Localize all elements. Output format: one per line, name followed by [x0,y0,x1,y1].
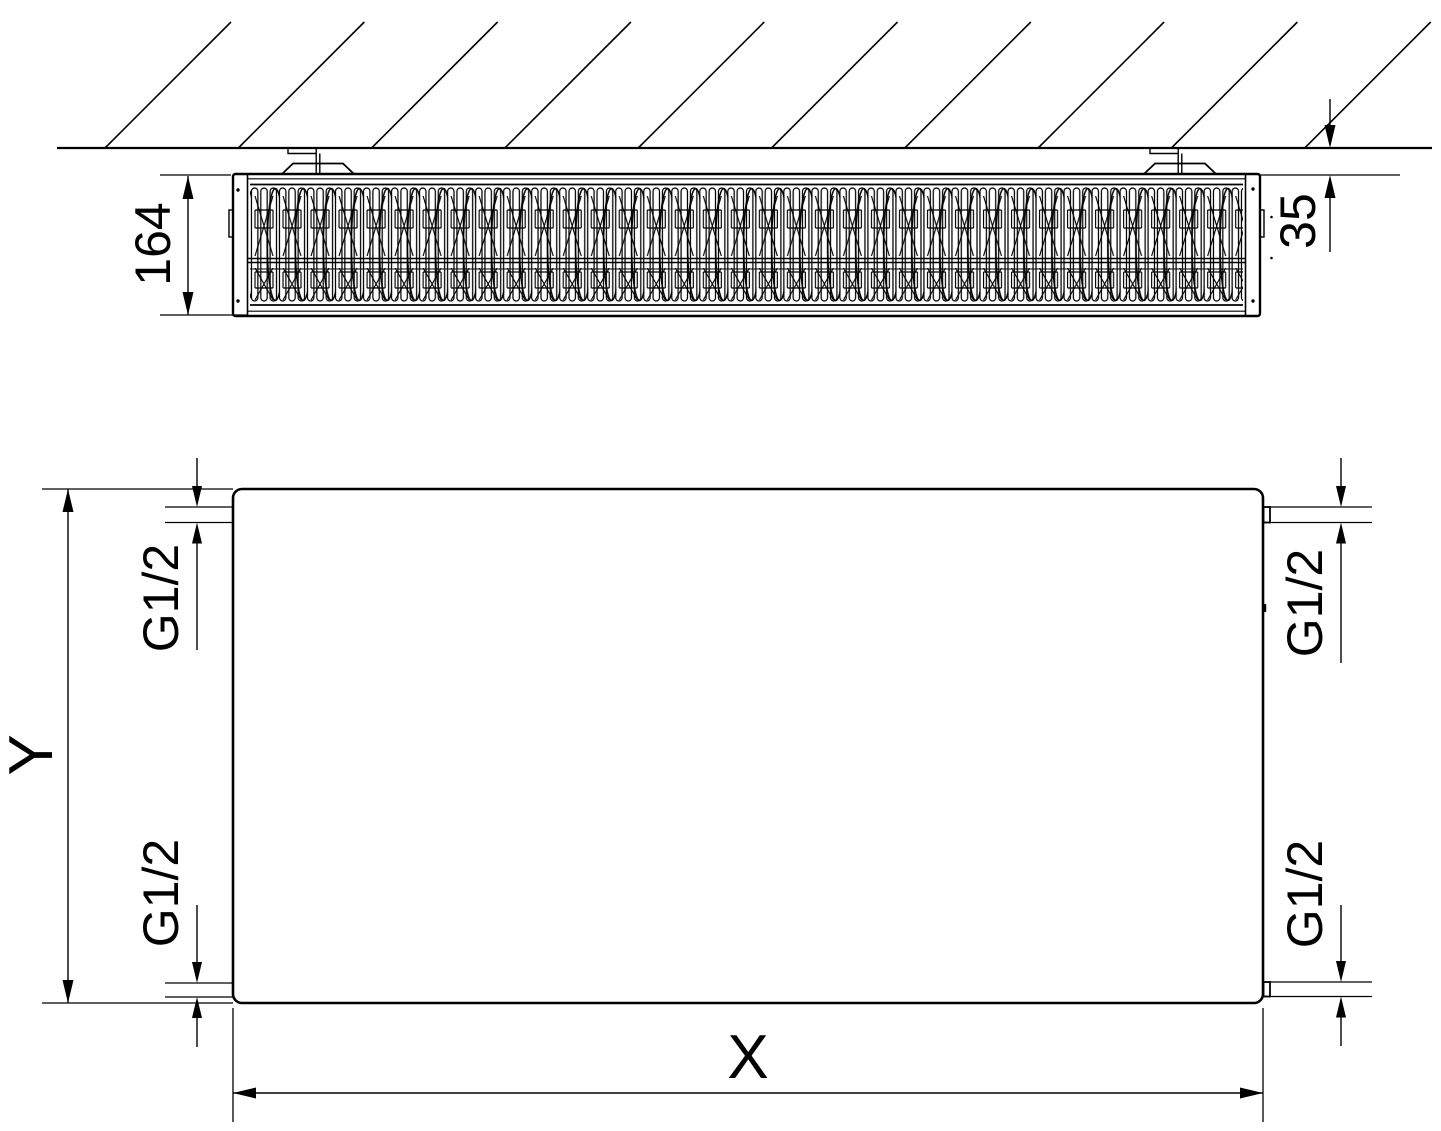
top-view: 164 35 [57,22,1432,316]
bracket-hook-right [1150,149,1178,154]
front-view: Y X G1/2 G1/2 [0,458,1372,1122]
connection-dim-top-right: G1/2 [1263,458,1372,663]
dimension-wall-offset-35: 35 [1260,99,1400,252]
side-tab-right [1260,210,1264,237]
depth-dimension-label: 164 [125,202,181,285]
connection-dim-bottom-left: G1/2 [133,839,233,1047]
wall-hatch-lines [105,22,1431,148]
dimension-height-y: Y [0,489,233,1003]
connection-stub-bottom-right [1264,982,1271,997]
connection-label-bottom-right: G1/2 [1277,840,1333,948]
arrowhead-down [63,980,74,1003]
grille-corrugation-motifs [250,187,1243,303]
bracket-hook-left [288,149,316,154]
arrowhead-left [233,1088,256,1099]
arrowhead-down [192,486,202,507]
wall-offset-dimension-label: 35 [1270,193,1326,249]
arrowhead-down [183,292,194,315]
connection-dim-top-left: G1/2 [133,458,233,652]
mounting-bracket-right [1135,149,1225,175]
arrowhead-up [63,489,74,512]
arrowhead-up [192,997,202,1018]
connection-label-bottom-left: G1/2 [133,839,189,947]
arrowhead-down [192,962,202,983]
drawing-canvas: 164 35 Y [0,0,1441,1131]
connection-stub-top-right [1264,507,1271,523]
radiator-technical-drawing: 164 35 Y [0,0,1441,1131]
radiator-front-panel [233,489,1263,1003]
convector-grille [248,185,1246,306]
arrowhead-up [1325,175,1336,198]
connection-label-top-right: G1/2 [1277,549,1333,657]
dimension-depth-164: 164 [125,175,248,315]
arrowhead-down [1325,125,1336,148]
arrowhead-down [1336,486,1346,507]
mounting-bracket-left [273,149,363,175]
width-dimension-label: X [727,1023,768,1092]
radiator-body-top-view [229,174,1273,316]
connection-label-top-left: G1/2 [133,544,189,652]
connection-dim-bottom-right: G1/2 [1263,840,1372,1046]
dimension-width-x: X [233,1008,1263,1122]
arrowhead-up [183,176,194,199]
arrowhead-right [1240,1088,1263,1099]
panel-edge-seam-mark [1263,604,1266,612]
arrowhead-up [1336,523,1346,544]
height-dimension-label: Y [0,734,66,775]
arrowhead-up [192,523,202,544]
side-tab-left [229,210,233,237]
arrowhead-down [1336,961,1346,982]
arrowhead-up [1336,997,1346,1018]
